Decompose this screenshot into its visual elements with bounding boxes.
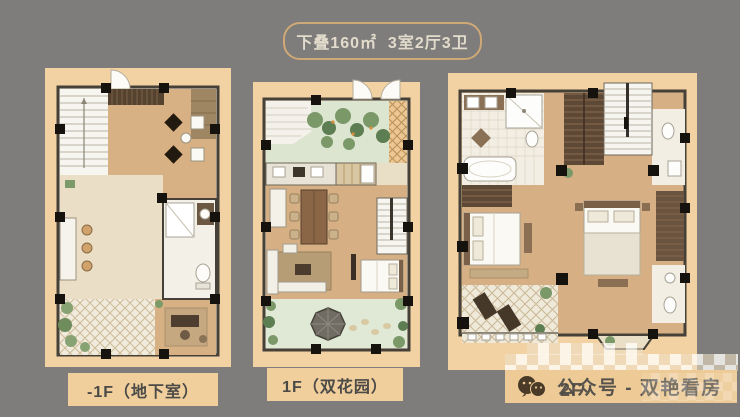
bedroom (361, 260, 403, 292)
closet (564, 93, 604, 165)
floorplan-basement-drawing (45, 68, 231, 367)
entry-door-arcs (353, 80, 400, 99)
stairs (60, 89, 108, 175)
floorplan-floor2-drawing (448, 73, 697, 370)
floorplan-poster: 下叠160㎡ 3室2厅3卫 (0, 0, 740, 417)
floor-label-floor2: 2F (560, 375, 600, 405)
wardrobe-right (656, 191, 684, 261)
censor-mosaic (505, 354, 738, 371)
wechat-icon (515, 375, 549, 399)
floor-label-basement: -1F（地下室） (68, 373, 218, 406)
floor-label-floor1: 1F（双花园） (267, 368, 403, 401)
entry-door-arc (111, 70, 130, 89)
stairs (377, 198, 407, 254)
floorplan-floor2 (448, 73, 697, 370)
floorplan-floor1-drawing (253, 82, 420, 367)
floorplan-floor1 (253, 82, 420, 367)
bathroom (163, 199, 216, 299)
stairs (604, 83, 652, 155)
unit-title-badge: 下叠160㎡ 3室2厅3卫 (283, 22, 482, 60)
watermark-bar: 公众号 - 双艳看房 (505, 370, 737, 403)
floorplan-basement (45, 68, 231, 367)
kitchen (266, 163, 376, 185)
